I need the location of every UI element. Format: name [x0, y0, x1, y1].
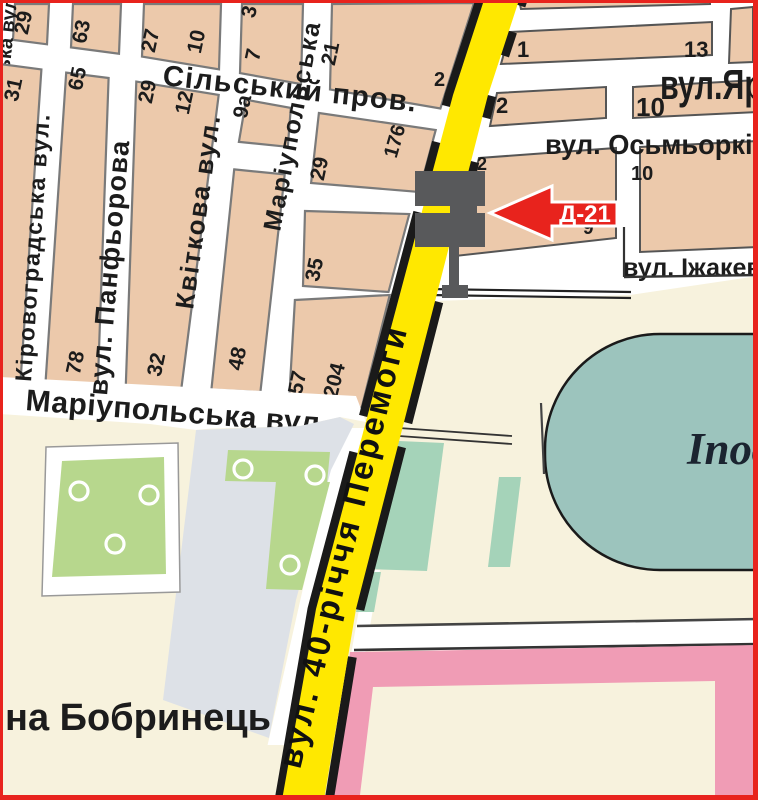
svg-text:Д-21: Д-21	[559, 201, 611, 228]
svg-text:10: 10	[631, 163, 653, 185]
svg-text:на Бобринець: на Бобринець	[5, 697, 271, 739]
svg-text:63: 63	[68, 18, 95, 46]
svg-text:Іпод: Іпод	[686, 424, 758, 474]
svg-text:29: 29	[134, 78, 161, 106]
svg-text:10: 10	[183, 28, 210, 56]
svg-text:2: 2	[434, 69, 445, 91]
svg-text:2: 2	[496, 93, 508, 118]
svg-text:32: 32	[143, 351, 170, 379]
svg-text:27: 27	[137, 27, 164, 55]
svg-text:57: 57	[284, 369, 311, 397]
svg-text:вул.Яр: вул.Яр	[660, 61, 758, 108]
svg-text:29: 29	[306, 155, 333, 183]
svg-text:вул. Осьмьоркін: вул. Осьмьоркін	[545, 129, 758, 160]
svg-text:1: 1	[517, 37, 529, 62]
svg-text:13: 13	[684, 37, 708, 62]
